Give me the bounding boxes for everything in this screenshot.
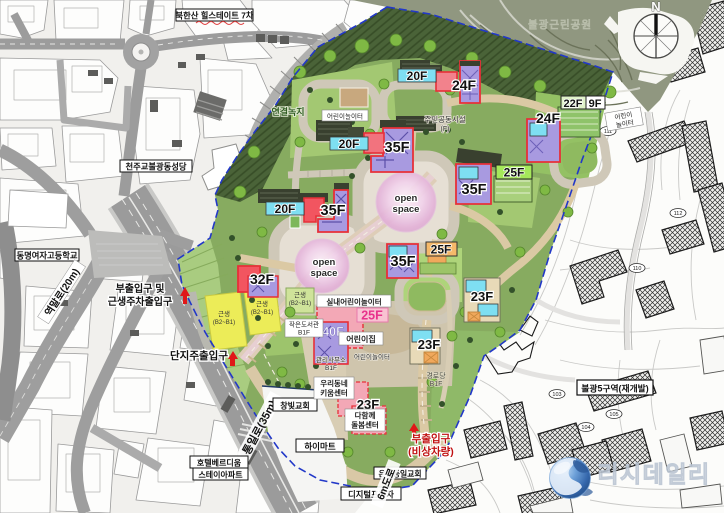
- svg-text:25F: 25F: [431, 243, 452, 257]
- svg-text:20F: 20F: [407, 69, 428, 83]
- svg-text:어린이놀이터: 어린이놀이터: [327, 112, 363, 121]
- svg-text:(B2~B1): (B2~B1): [251, 310, 273, 316]
- svg-text:35F: 35F: [321, 203, 346, 219]
- svg-text:B1F: B1F: [325, 365, 337, 372]
- svg-text:104: 104: [581, 425, 590, 431]
- svg-text:(B2~B1): (B2~B1): [289, 301, 311, 307]
- svg-text:23F: 23F: [418, 337, 440, 352]
- svg-text:open: open: [313, 257, 336, 268]
- svg-text:24F: 24F: [452, 77, 477, 93]
- svg-text:동명여자고등학교: 동명여자고등학교: [16, 251, 77, 261]
- svg-text:20F: 20F: [275, 202, 296, 216]
- svg-text:open: open: [395, 193, 418, 204]
- svg-text:23F: 23F: [471, 289, 493, 304]
- svg-text:키움센터: 키움센터: [320, 388, 348, 398]
- svg-text:어린이집: 어린이집: [346, 334, 375, 344]
- svg-text:근생: 근생: [256, 299, 268, 308]
- svg-text:N: N: [651, 0, 660, 14]
- svg-text:실내어린이놀이터: 실내어린이놀이터: [326, 297, 381, 307]
- svg-text:경로당: 경로당: [426, 371, 446, 380]
- svg-text:창빛교회: 창빛교회: [280, 401, 309, 411]
- svg-text:105: 105: [609, 412, 618, 418]
- svg-text:부출입구: 부출입구: [412, 432, 451, 445]
- svg-text:103: 103: [552, 392, 561, 398]
- svg-text:24F: 24F: [536, 110, 561, 126]
- svg-text:근생: 근생: [218, 309, 230, 318]
- svg-text:35F: 35F: [385, 140, 410, 156]
- svg-text:35F: 35F: [462, 182, 487, 198]
- svg-text:(F): (F): [441, 126, 450, 133]
- svg-text:space: space: [311, 268, 338, 279]
- svg-text:작은도서관: 작은도서관: [289, 320, 319, 329]
- svg-text:근생주차출입구: 근생주차출입구: [108, 295, 172, 308]
- svg-text:110: 110: [633, 266, 642, 272]
- svg-text:22F: 22F: [564, 98, 583, 110]
- svg-text:9F: 9F: [589, 98, 602, 110]
- svg-text:25F: 25F: [504, 166, 525, 180]
- svg-text:다함께: 다함께: [355, 410, 376, 420]
- svg-text:B1F: B1F: [430, 381, 443, 388]
- svg-text:25F: 25F: [361, 309, 383, 323]
- svg-text:32F: 32F: [250, 271, 275, 287]
- svg-text:단지주출입구: 단지주출입구: [170, 349, 228, 362]
- svg-text:하이마트: 하이마트: [304, 442, 335, 452]
- svg-text:리시데일리: 리시데일리: [597, 461, 710, 487]
- svg-text:호텔베르디움: 호텔베르디움: [197, 458, 242, 468]
- svg-text:관리사무소: 관리사무소: [316, 355, 346, 364]
- svg-text:주민공동시설: 주민공동시설: [424, 114, 465, 124]
- svg-text:돌봄센터: 돌봄센터: [351, 420, 379, 430]
- svg-text:어린이놀이터: 어린이놀이터: [354, 352, 390, 361]
- svg-text:북한산 힐스테이트 7차: 북한산 힐스테이트 7차: [176, 11, 254, 21]
- svg-text:연결녹지: 연결녹지: [271, 106, 304, 117]
- svg-text:스테이아파트: 스테이아파트: [198, 470, 243, 480]
- svg-text:20F: 20F: [339, 137, 360, 151]
- svg-text:불광5구역(재개발): 불광5구역(재개발): [581, 383, 648, 394]
- svg-text:천주교불광동성당: 천주교불광동성당: [125, 162, 186, 172]
- svg-text:불광근린공원: 불광근린공원: [528, 18, 592, 31]
- svg-text:우리동네: 우리동네: [320, 378, 348, 388]
- svg-text:(B2~B1): (B2~B1): [213, 320, 235, 326]
- svg-text:근생: 근생: [294, 290, 306, 299]
- svg-text:부출입구 및: 부출입구 및: [116, 282, 165, 295]
- svg-text:35F: 35F: [391, 254, 416, 270]
- svg-text:B1F: B1F: [298, 330, 310, 337]
- svg-text:112: 112: [674, 211, 683, 217]
- svg-text:(비상차량): (비상차량): [408, 445, 454, 458]
- svg-text:space: space: [393, 204, 420, 215]
